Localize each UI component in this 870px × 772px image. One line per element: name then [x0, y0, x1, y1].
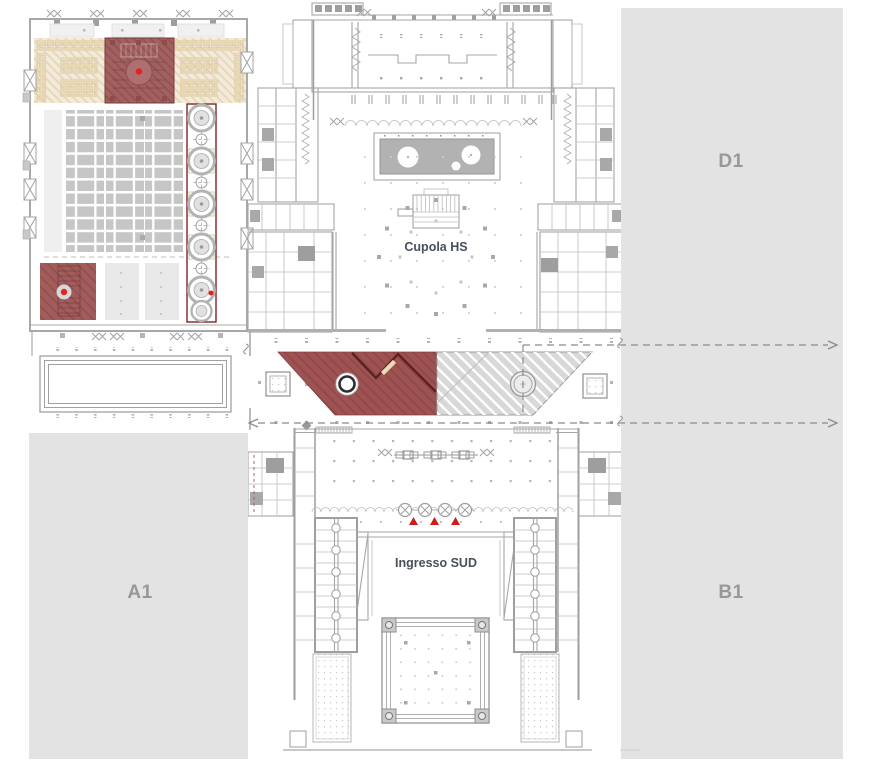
red-route-overlay — [278, 352, 437, 415]
cupola-label: Cupola HS — [404, 240, 467, 254]
west-annex-rooms — [248, 452, 293, 516]
exhibition-hall-block — [23, 10, 253, 340]
maroon-stair-highlight — [40, 263, 96, 320]
west-ramp — [313, 654, 351, 742]
zone-label-a1: A1 — [127, 582, 152, 603]
stage-square-highlight — [105, 38, 174, 103]
mid-plaza — [244, 332, 624, 433]
cupola-rotunda: Cupola HS — [248, 135, 624, 332]
red-dot-marker — [136, 68, 142, 74]
east-ramp — [521, 654, 559, 742]
west-tower-rooms — [248, 232, 332, 332]
south-courtyard — [382, 618, 489, 723]
east-tower-rooms — [540, 232, 624, 332]
zone-d1-b1-region — [621, 8, 843, 759]
zone-label-d1: D1 — [718, 151, 743, 172]
south-block: Ingresso SUD — [248, 428, 623, 750]
manhole-grate — [583, 374, 607, 398]
ingresso-hall: Ingresso SUD — [354, 532, 518, 620]
red-dot-marker — [209, 291, 214, 296]
floor-plan-page: Cupola HS — [0, 0, 870, 772]
west-wing-rooms — [258, 88, 318, 202]
ingresso-sud-label: Ingresso SUD — [395, 556, 477, 570]
west-ladder-tower — [315, 518, 357, 652]
east-wing-rooms — [554, 88, 614, 202]
floor-plan-canvas: Cupola HS — [0, 0, 870, 772]
east-annex-rooms — [578, 452, 623, 516]
manhole-grate — [266, 372, 290, 396]
zone-label-b1: B1 — [718, 582, 743, 603]
fixtures-column — [187, 104, 216, 322]
east-ladder-tower — [514, 518, 556, 652]
red-dot-marker — [61, 289, 67, 295]
pool-basin — [32, 331, 232, 418]
south-scallop-row — [312, 504, 573, 517]
column-marker — [340, 377, 355, 392]
arcade-scallops — [330, 118, 537, 126]
hatched-zone-overlay — [437, 352, 592, 415]
